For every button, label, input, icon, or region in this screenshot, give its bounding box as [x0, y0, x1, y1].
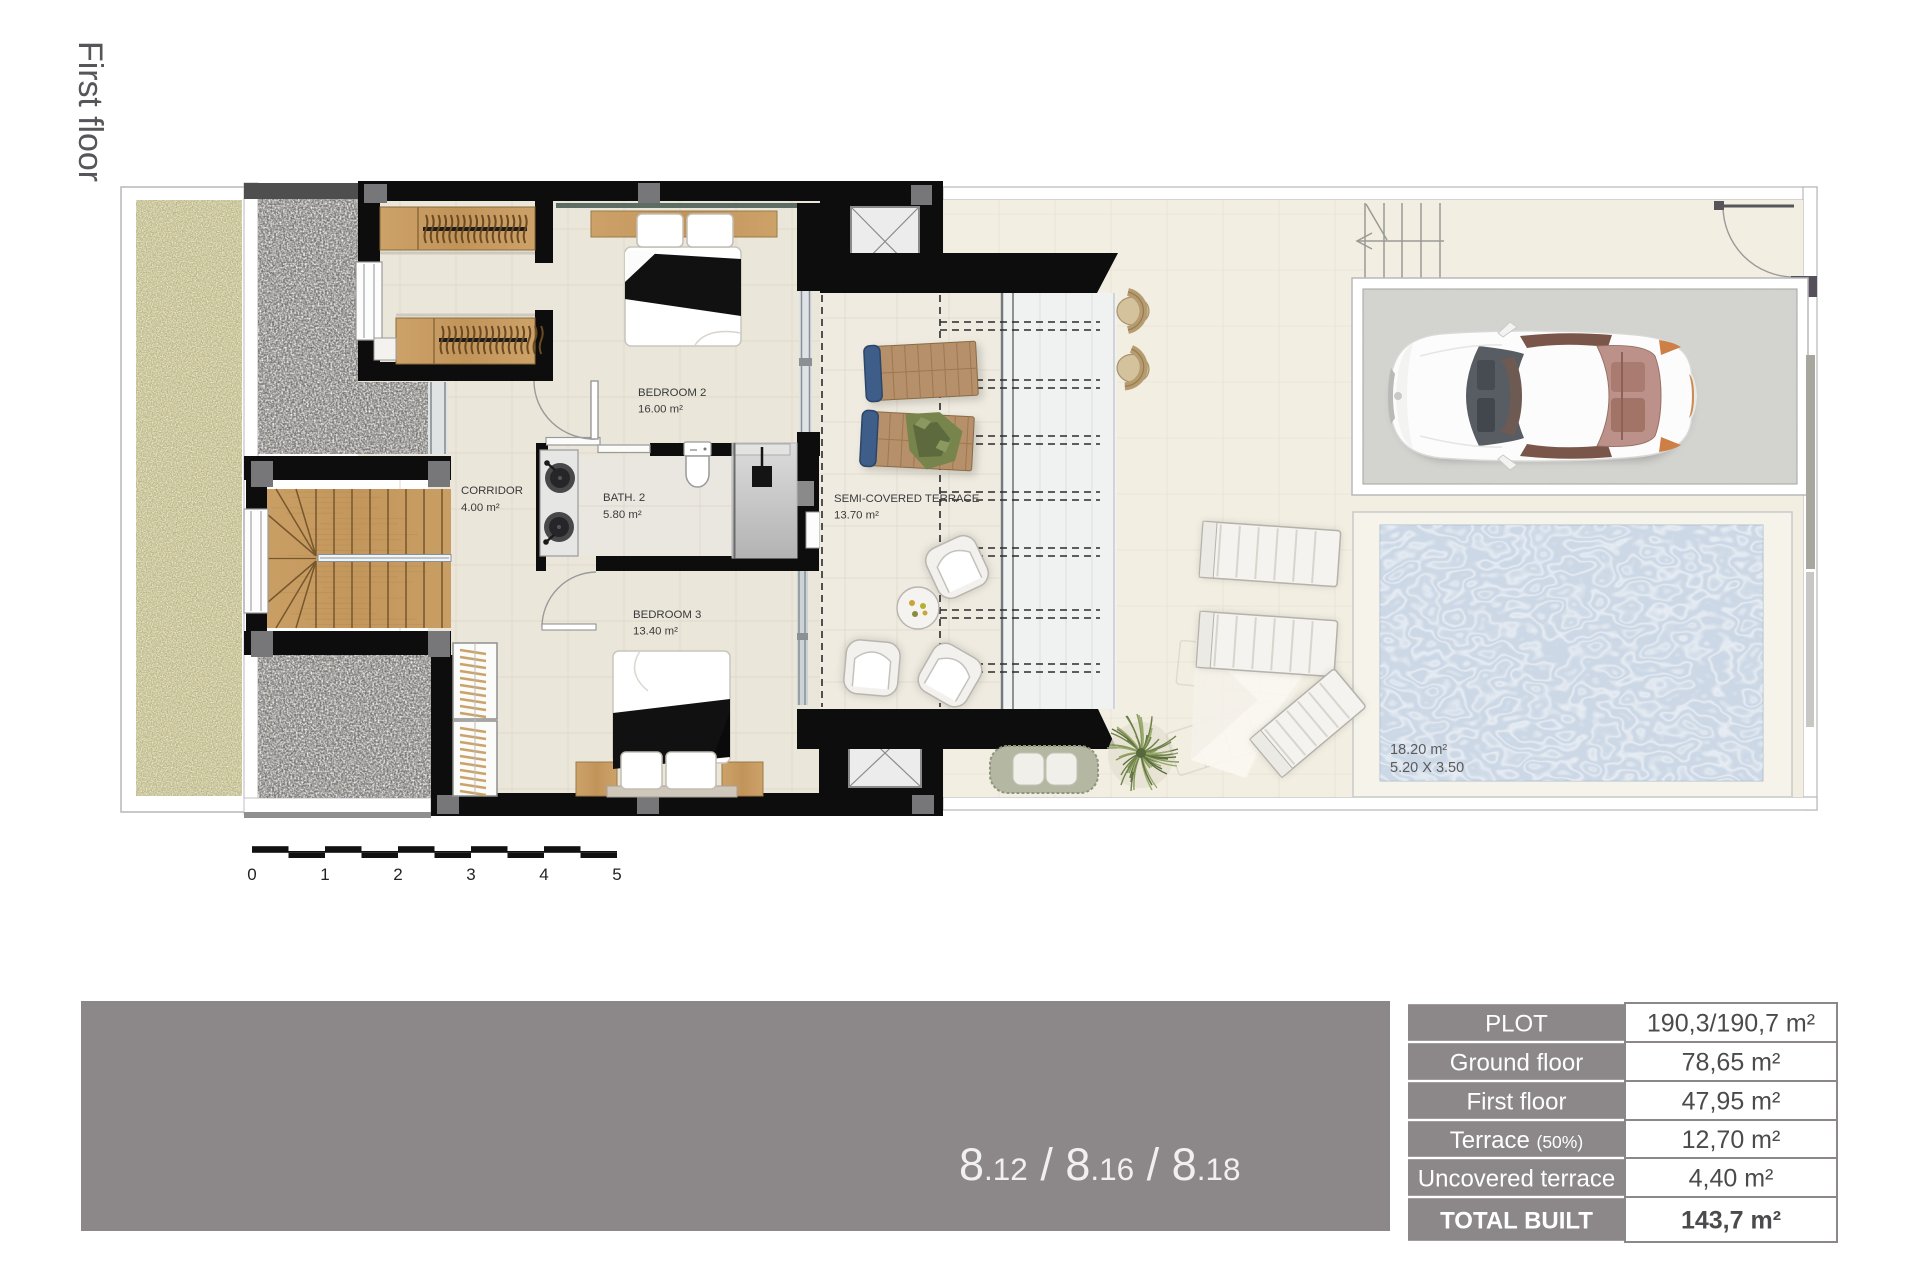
svg-text:SEMI-COVERED TERRACE: SEMI-COVERED TERRACE — [834, 493, 980, 505]
svg-text:143,7 m²: 143,7 m² — [1681, 1207, 1781, 1235]
svg-text:5: 5 — [612, 865, 621, 884]
svg-text:5.80 m²: 5.80 m² — [603, 509, 642, 521]
svg-text:190,3/190,7 m²: 190,3/190,7 m² — [1647, 1010, 1815, 1038]
svg-text:4,40 m²: 4,40 m² — [1689, 1165, 1774, 1193]
svg-text:13.70 m²: 13.70 m² — [834, 510, 879, 522]
svg-text:Uncovered terrace: Uncovered terrace — [1418, 1166, 1615, 1193]
svg-text:1: 1 — [320, 865, 329, 884]
svg-text:First floor: First floor — [1466, 1089, 1566, 1116]
svg-text:47,95 m²: 47,95 m² — [1682, 1088, 1781, 1116]
svg-text:18.20 m²: 18.20 m² — [1390, 742, 1447, 758]
svg-text:4.00 m²: 4.00 m² — [461, 502, 500, 514]
svg-text:4: 4 — [539, 865, 548, 884]
svg-text:BATH. 2: BATH. 2 — [603, 492, 645, 504]
svg-text:2: 2 — [393, 865, 402, 884]
svg-text:78,65 m²: 78,65 m² — [1682, 1049, 1781, 1077]
svg-text:BEDROOM 2: BEDROOM 2 — [638, 387, 706, 399]
svg-text:TOTAL BUILT: TOTAL BUILT — [1440, 1208, 1593, 1235]
svg-text:13.40 m²: 13.40 m² — [633, 626, 678, 638]
svg-text:5.20 X 3.50: 5.20 X 3.50 — [1390, 760, 1464, 776]
svg-text:0: 0 — [247, 865, 256, 884]
svg-text:12,70 m²: 12,70 m² — [1682, 1126, 1781, 1154]
svg-text:Terrace (50%): Terrace (50%) — [1450, 1127, 1583, 1154]
svg-text:Ground floor: Ground floor — [1450, 1050, 1583, 1077]
svg-text:3: 3 — [466, 865, 475, 884]
svg-text:BEDROOM 3: BEDROOM 3 — [633, 609, 701, 621]
svg-text:CORRIDOR: CORRIDOR — [461, 485, 523, 497]
svg-text:PLOT: PLOT — [1485, 1011, 1548, 1038]
svg-text:16.00 m²: 16.00 m² — [638, 404, 683, 416]
svg-text:First floor: First floor — [71, 41, 109, 182]
